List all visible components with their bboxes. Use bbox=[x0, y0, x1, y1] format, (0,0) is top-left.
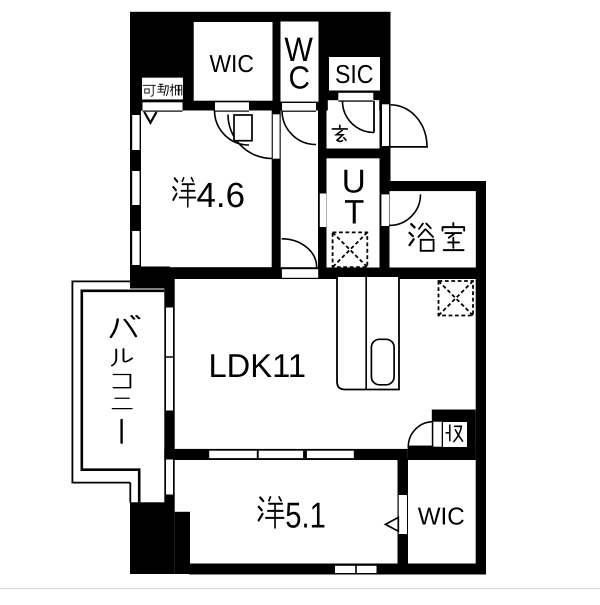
svg-text:T: T bbox=[344, 194, 364, 232]
svg-text:C: C bbox=[288, 60, 310, 96]
svg-text:WIC: WIC bbox=[209, 51, 254, 78]
svg-text:SIC: SIC bbox=[335, 59, 374, 89]
svg-text:WIC: WIC bbox=[418, 503, 465, 530]
svg-text:4.6: 4.6 bbox=[197, 176, 246, 215]
svg-text:5.1: 5.1 bbox=[285, 495, 326, 536]
svg-text:LDK11: LDK11 bbox=[209, 347, 307, 384]
